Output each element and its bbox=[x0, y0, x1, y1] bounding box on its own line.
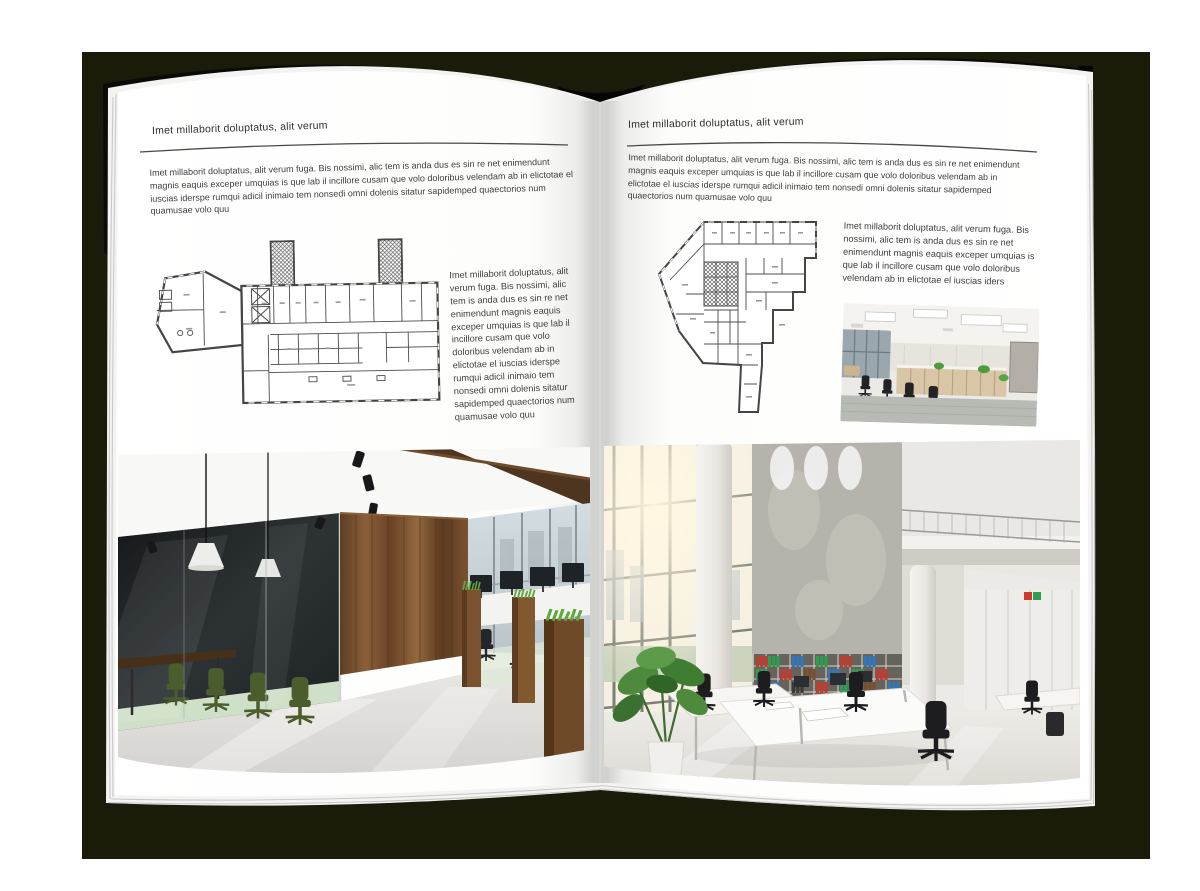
floor-plan-left bbox=[148, 227, 451, 418]
right-page-side-text: Imet millaborit doluptatus, alit verum f… bbox=[842, 220, 1042, 289]
photo-small-office bbox=[840, 303, 1039, 426]
photo-left-loft-office bbox=[118, 447, 590, 775]
left-page-side-text: Imet millaborit doluptatus, alit verum f… bbox=[449, 265, 577, 424]
brochure-mockup: Imet millaborit doluptatus, alit verum I… bbox=[0, 0, 1200, 891]
photo-right-atrium-office bbox=[604, 440, 1080, 790]
right-page-intro: Imet millaborit doluptatus, alit verum f… bbox=[628, 151, 1029, 210]
floor-plan-right bbox=[646, 214, 846, 419]
